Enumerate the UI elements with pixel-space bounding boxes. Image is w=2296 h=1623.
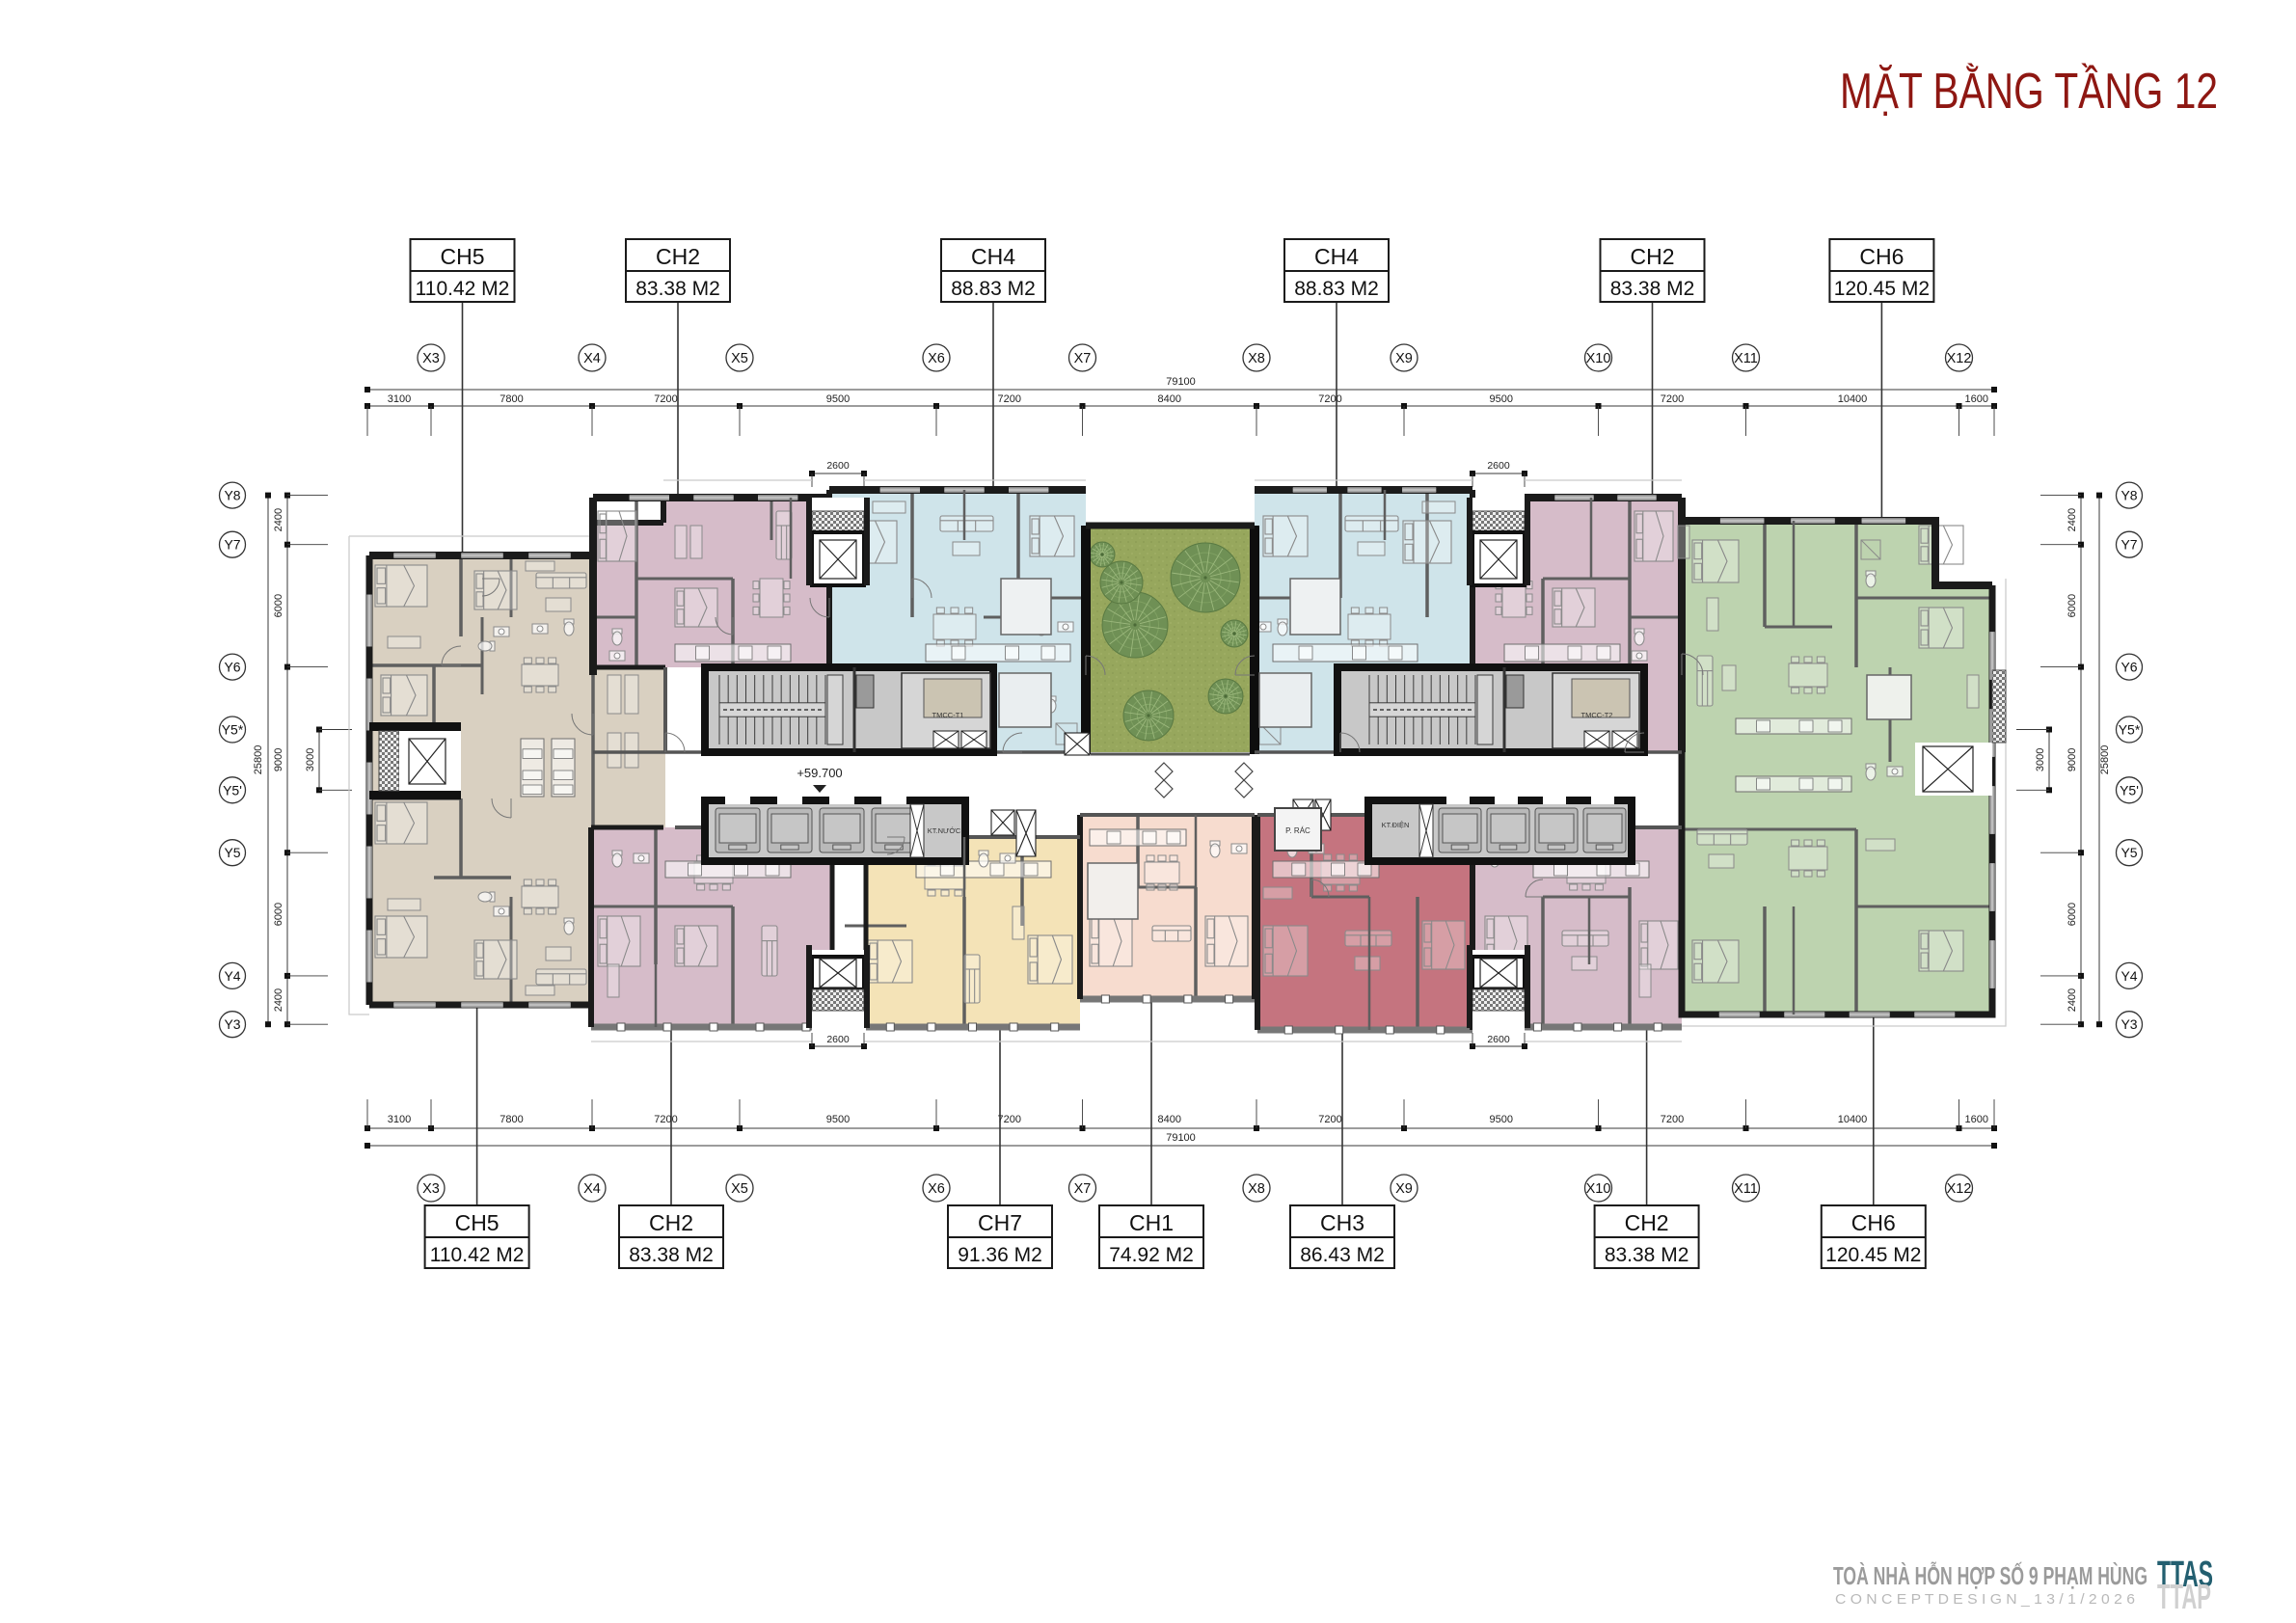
svg-text:C O N C E P T D E S I G N _: C O N C E P T D E S I G N _ 1 3 / 1 / 2 … <box>1835 1591 2135 1608</box>
svg-text:8400: 8400 <box>1158 1114 1181 1125</box>
svg-text:X11: X11 <box>1734 351 1758 366</box>
svg-text:CH7: CH7 <box>978 1210 1022 1235</box>
svg-text:110.42 M2: 110.42 M2 <box>430 1244 525 1266</box>
svg-text:TOÀ NHÀ HỖN HỢP SỐ 9 PHẠM HÙNG: TOÀ NHÀ HỖN HỢP SỐ 9 PHẠM HÙNG <box>1833 1561 2147 1590</box>
svg-text:X3: X3 <box>422 1181 440 1197</box>
svg-text:X12: X12 <box>1947 351 1972 366</box>
svg-text:6000: 6000 <box>273 903 284 926</box>
svg-text:7200: 7200 <box>1318 1114 1341 1125</box>
svg-text:83.38 M2: 83.38 M2 <box>1605 1244 1689 1266</box>
svg-text:TMCC-T2: TMCC-T2 <box>1581 711 1613 719</box>
svg-text:9500: 9500 <box>1490 1114 1513 1125</box>
svg-text:CH2: CH2 <box>656 244 700 269</box>
svg-text:88.83 M2: 88.83 M2 <box>1294 278 1379 300</box>
svg-text:3000: 3000 <box>2035 748 2046 771</box>
svg-text:2400: 2400 <box>273 508 284 531</box>
svg-text:CH5: CH5 <box>455 1210 500 1235</box>
svg-text:CH2: CH2 <box>1625 1210 1669 1235</box>
svg-text:CH1: CH1 <box>1129 1210 1174 1235</box>
svg-text:Y4: Y4 <box>224 968 240 984</box>
svg-text:7800: 7800 <box>500 393 523 405</box>
svg-text:7200: 7200 <box>1661 1114 1684 1125</box>
svg-text:CH5: CH5 <box>440 244 484 269</box>
svg-text:Y7: Y7 <box>224 537 240 553</box>
svg-text:2400: 2400 <box>2066 508 2078 531</box>
svg-text:2600: 2600 <box>1487 460 1510 472</box>
svg-text:86.43 M2: 86.43 M2 <box>1300 1244 1385 1266</box>
svg-text:CH2: CH2 <box>649 1210 693 1235</box>
svg-text:83.38 M2: 83.38 M2 <box>1610 278 1695 300</box>
svg-text:74.92 M2: 74.92 M2 <box>1109 1244 1194 1266</box>
svg-text:2600: 2600 <box>826 460 850 472</box>
svg-text:X10: X10 <box>1586 351 1611 366</box>
svg-text:Y5*: Y5* <box>2119 722 2141 738</box>
svg-text:X9: X9 <box>1395 1181 1413 1197</box>
svg-text:83.38 M2: 83.38 M2 <box>635 278 720 300</box>
svg-text:2600: 2600 <box>1487 1034 1510 1045</box>
svg-text:9500: 9500 <box>826 393 850 405</box>
svg-text:1600: 1600 <box>1965 1114 1988 1125</box>
svg-text:Y5': Y5' <box>2120 782 2139 798</box>
svg-text:X8: X8 <box>1248 1181 1265 1197</box>
svg-text:CH4: CH4 <box>971 244 1015 269</box>
svg-text:7200: 7200 <box>998 393 1021 405</box>
svg-text:CH2: CH2 <box>1630 244 1674 269</box>
svg-text:2400: 2400 <box>2066 988 2078 1012</box>
svg-text:Y8: Y8 <box>224 488 240 503</box>
svg-text:9000: 9000 <box>2066 748 2078 771</box>
svg-text:83.38 M2: 83.38 M2 <box>629 1244 714 1266</box>
svg-text:X5: X5 <box>731 1181 748 1197</box>
svg-text:CH6: CH6 <box>1851 1210 1896 1235</box>
svg-text:KT.ĐIỆN: KT.ĐIỆN <box>1382 821 1410 829</box>
svg-text:CH6: CH6 <box>1859 244 1904 269</box>
svg-text:7200: 7200 <box>1661 393 1684 405</box>
svg-text:Y8: Y8 <box>2120 488 2137 503</box>
svg-text:X6: X6 <box>928 351 945 366</box>
svg-text:P. RÁC: P. RÁC <box>1285 826 1310 835</box>
svg-text:Y3: Y3 <box>2120 1016 2137 1032</box>
svg-text:Y6: Y6 <box>2120 660 2137 675</box>
svg-text:Y4: Y4 <box>2120 968 2137 984</box>
svg-text:TMCC-T1: TMCC-T1 <box>932 711 964 719</box>
svg-text:X10: X10 <box>1586 1181 1611 1197</box>
svg-text:79100: 79100 <box>1166 1132 1196 1144</box>
svg-text:Y7: Y7 <box>2120 537 2137 553</box>
svg-text:7200: 7200 <box>998 1114 1021 1125</box>
svg-text:2600: 2600 <box>826 1034 850 1045</box>
svg-text:88.83 M2: 88.83 M2 <box>951 278 1036 300</box>
svg-text:X4: X4 <box>583 351 601 366</box>
svg-text:MẶT BẰNG TẦNG 12: MẶT BẰNG TẦNG 12 <box>1840 63 2218 120</box>
svg-text:1600: 1600 <box>1965 393 1988 405</box>
svg-text:Y5: Y5 <box>224 845 240 860</box>
svg-text:X9: X9 <box>1395 351 1413 366</box>
svg-text:120.45 M2: 120.45 M2 <box>1825 1244 1921 1266</box>
svg-text:7800: 7800 <box>500 1114 523 1125</box>
svg-text:25800: 25800 <box>253 745 264 775</box>
svg-text:X5: X5 <box>731 351 748 366</box>
svg-text:X3: X3 <box>422 351 440 366</box>
svg-text:X8: X8 <box>1248 351 1265 366</box>
svg-text:Y5: Y5 <box>2120 845 2137 860</box>
svg-text:6000: 6000 <box>2066 903 2078 926</box>
svg-text:3100: 3100 <box>388 393 411 405</box>
svg-text:7200: 7200 <box>1318 393 1341 405</box>
svg-text:91.36 M2: 91.36 M2 <box>958 1244 1042 1266</box>
svg-text:9500: 9500 <box>1490 393 1513 405</box>
svg-text:X7: X7 <box>1074 351 1092 366</box>
svg-text:6000: 6000 <box>2066 594 2078 617</box>
svg-text:Y3: Y3 <box>224 1016 240 1032</box>
svg-text:79100: 79100 <box>1166 376 1196 388</box>
svg-text:25800: 25800 <box>2099 745 2111 775</box>
svg-text:8400: 8400 <box>1158 393 1181 405</box>
svg-text:3100: 3100 <box>388 1114 411 1125</box>
svg-text:10400: 10400 <box>1838 393 1868 405</box>
svg-text:TTAP: TTAP <box>2157 1577 2211 1616</box>
svg-text:7200: 7200 <box>654 393 677 405</box>
svg-text:3000: 3000 <box>305 748 316 771</box>
svg-text:X12: X12 <box>1947 1181 1972 1197</box>
svg-text:120.45 M2: 120.45 M2 <box>1834 278 1930 300</box>
svg-text:2400: 2400 <box>273 988 284 1012</box>
svg-text:Y6: Y6 <box>224 660 240 675</box>
svg-text:KT.NƯỚC: KT.NƯỚC <box>928 826 961 835</box>
svg-text:X7: X7 <box>1074 1181 1092 1197</box>
svg-text:9500: 9500 <box>826 1114 850 1125</box>
svg-text:+59.700: +59.700 <box>797 766 842 780</box>
svg-text:X6: X6 <box>928 1181 945 1197</box>
svg-text:7200: 7200 <box>654 1114 677 1125</box>
svg-text:Y5': Y5' <box>223 782 242 798</box>
svg-text:Y5*: Y5* <box>222 722 244 738</box>
svg-text:CH3: CH3 <box>1320 1210 1364 1235</box>
svg-text:CH4: CH4 <box>1314 244 1359 269</box>
svg-text:6000: 6000 <box>273 594 284 617</box>
svg-text:9000: 9000 <box>273 748 284 771</box>
svg-text:110.42 M2: 110.42 M2 <box>416 278 510 300</box>
svg-text:X4: X4 <box>583 1181 601 1197</box>
svg-text:10400: 10400 <box>1838 1114 1868 1125</box>
svg-text:X11: X11 <box>1734 1181 1758 1197</box>
